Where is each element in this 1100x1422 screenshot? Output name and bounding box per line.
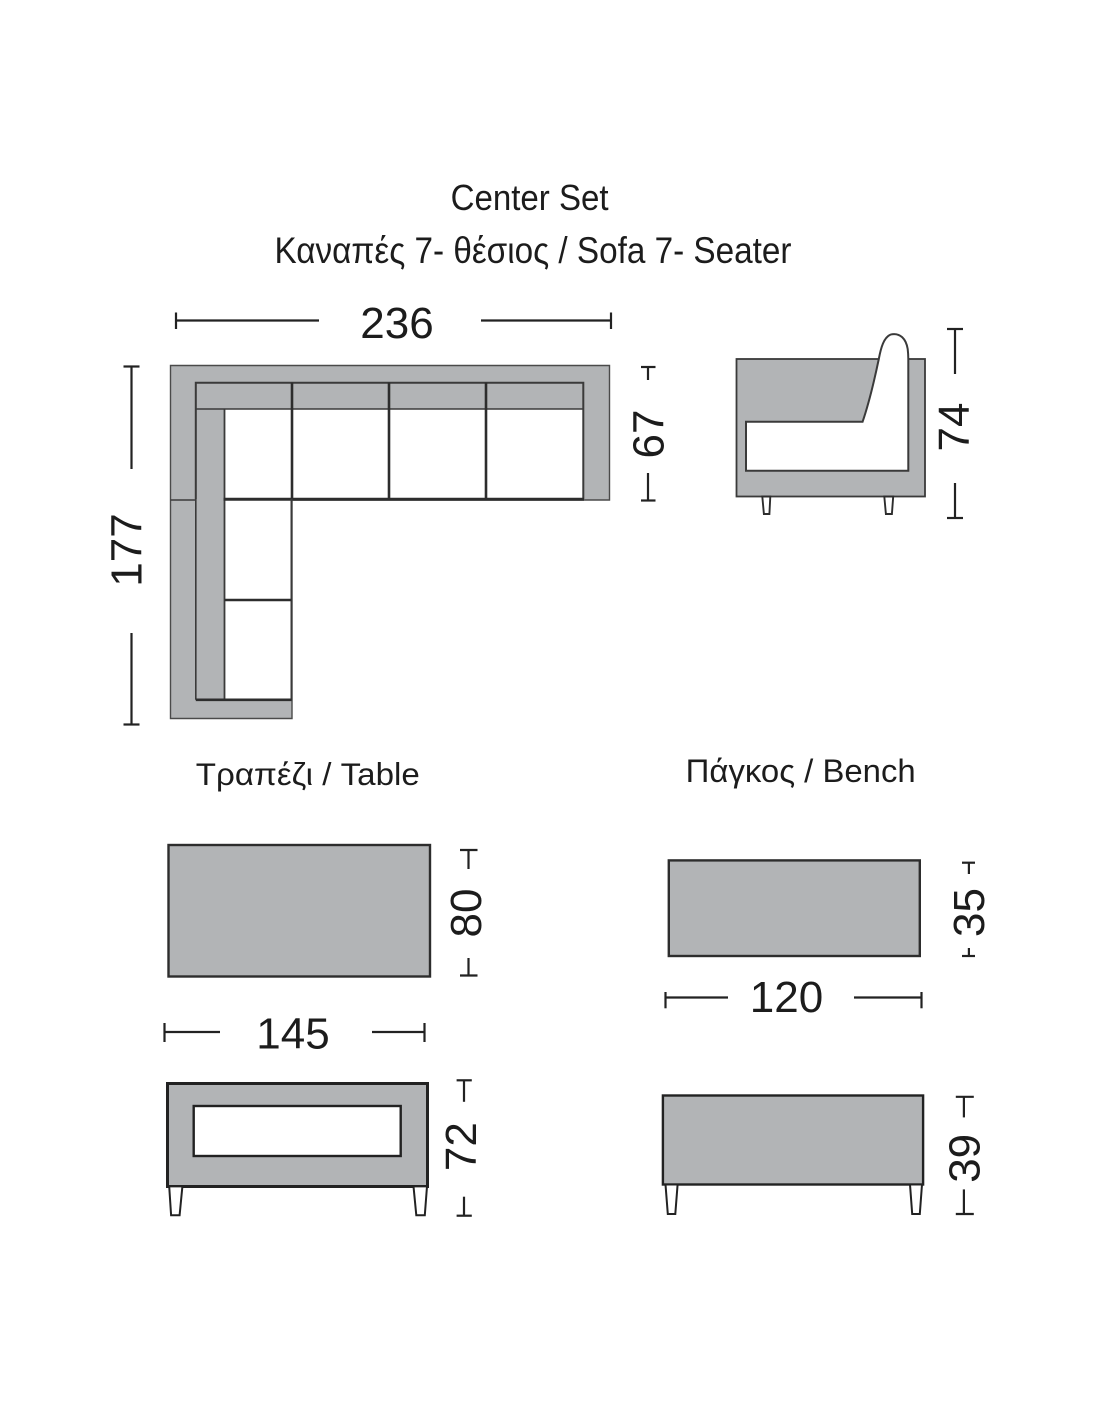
svg-text:236: 236 [360, 299, 433, 348]
svg-text:120: 120 [750, 973, 823, 1022]
svg-text:177: 177 [103, 513, 152, 586]
svg-text:67: 67 [625, 410, 674, 459]
svg-text:72: 72 [437, 1122, 486, 1171]
svg-text:35: 35 [945, 888, 994, 937]
svg-text:Τραπέζι / Table: Τραπέζι / Table [196, 756, 420, 792]
svg-text:74: 74 [930, 403, 979, 452]
svg-text:39: 39 [940, 1134, 989, 1183]
svg-text:80: 80 [442, 889, 491, 938]
svg-text:Πάγκος / Bench: Πάγκος / Bench [686, 753, 916, 789]
svg-text:Center Set: Center Set [451, 177, 609, 218]
svg-text:145: 145 [256, 1010, 329, 1059]
svg-text:Καναπές 7- θέσιος / Sofa 7- Se: Καναπές 7- θέσιος / Sofa 7- Seater [275, 230, 792, 271]
